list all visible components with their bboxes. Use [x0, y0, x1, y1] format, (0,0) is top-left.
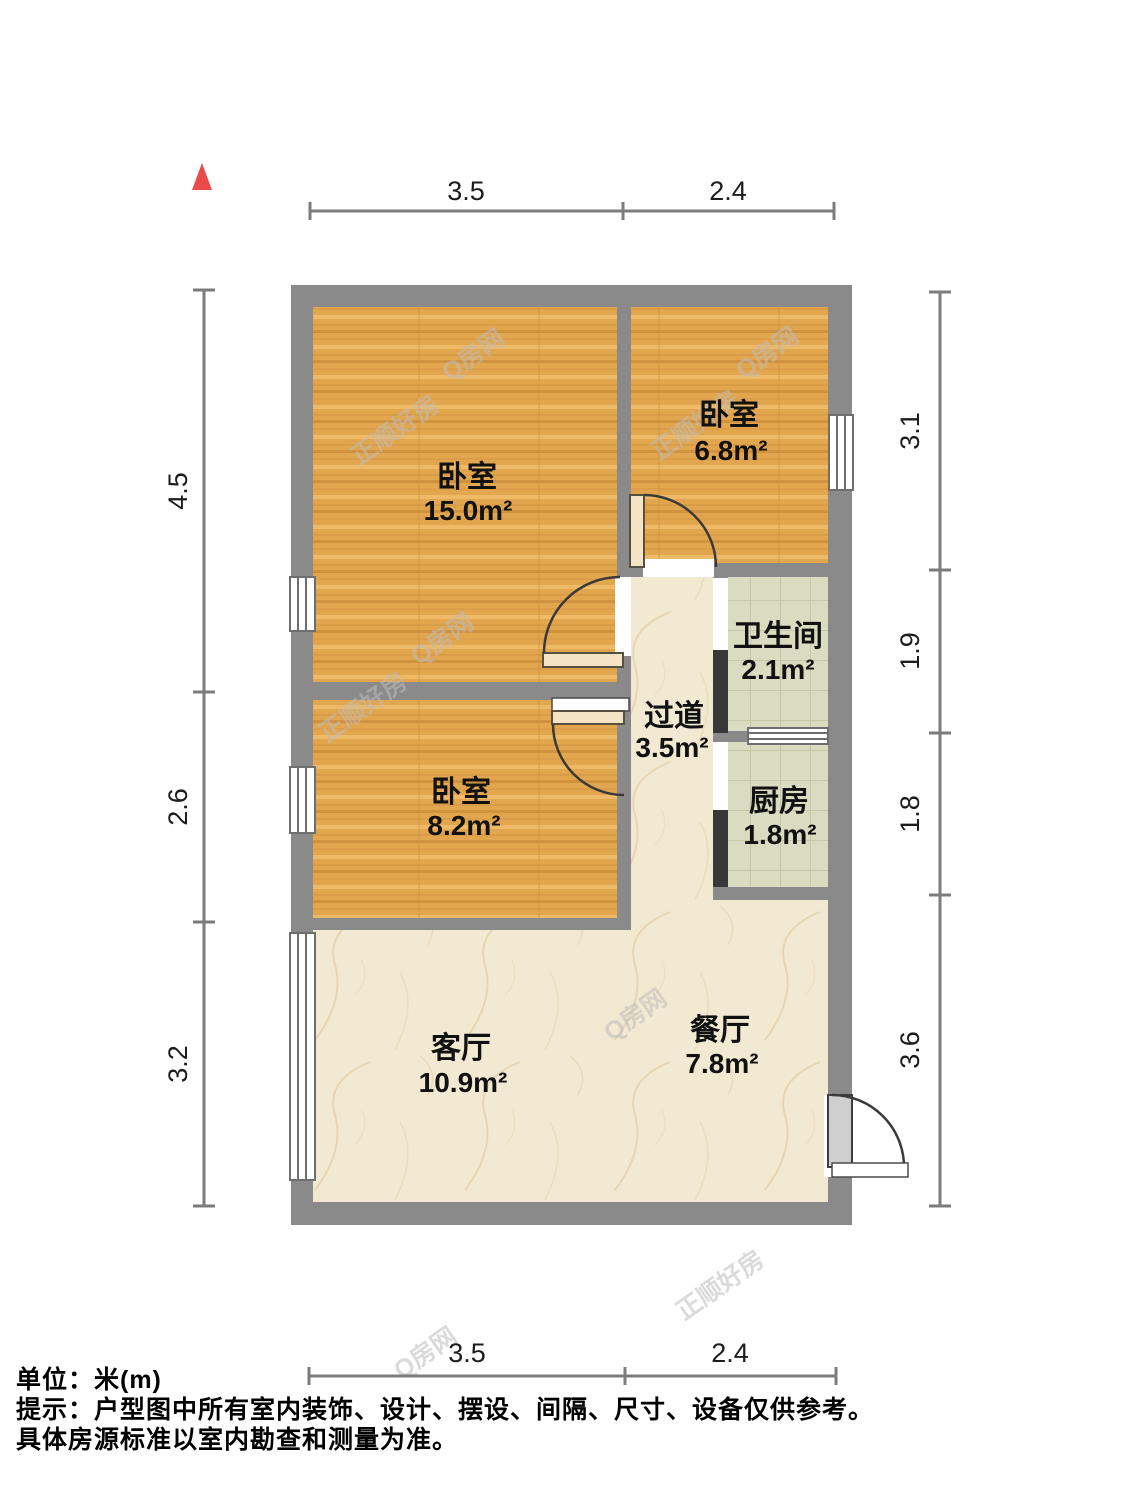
room-label-dining-room: 餐厅 7.8m² — [685, 1014, 758, 1079]
wall-top — [291, 285, 852, 307]
wall-bottom — [291, 1202, 852, 1225]
room-area: 3.5m² — [635, 732, 708, 763]
dim-bottom-right: 2.4 — [711, 1338, 749, 1368]
opening-bedroom-main-door — [615, 577, 631, 656]
watermark: 正顺好房 — [671, 1244, 770, 1325]
dim-right-4: 3.6 — [895, 1031, 925, 1069]
room-name: 客厅 — [431, 1031, 491, 1065]
window-living-room — [290, 933, 315, 1180]
room-area: 10.9m² — [419, 1067, 508, 1098]
opening-kitchen-door — [713, 742, 728, 810]
room-label-hallway: 过道 3.5m² — [635, 700, 708, 763]
floor-plan-canvas: 正顺好房 Q房网 正顺好房 Q房网 正顺好房 Q房网 Q房网 正顺好房 Q房网 … — [0, 0, 1144, 1503]
wall-kitchen-south — [713, 887, 828, 900]
dimension-right: 3.1 1.9 1.8 3.6 — [895, 292, 951, 1206]
room-area: 8.2m² — [427, 810, 500, 841]
door-entry — [828, 1095, 908, 1177]
room-name: 厨房 — [749, 785, 809, 818]
opening-bathroom-door — [713, 578, 728, 650]
dim-bottom-left: 3.5 — [448, 1338, 486, 1368]
floor-bedroom-middle — [313, 700, 617, 918]
window-bedroom-middle — [290, 767, 315, 833]
window-bath-kitchen-divider — [748, 728, 828, 744]
dimension-left: 4.5 2.6 3.2 — [163, 290, 215, 1206]
dim-right-3: 1.8 — [895, 795, 925, 833]
wall-dark-kitchen — [713, 810, 728, 887]
dim-left-3: 3.2 — [163, 1045, 193, 1083]
room-name: 卧室 — [699, 398, 759, 432]
dim-right-2: 1.9 — [895, 632, 925, 670]
dim-right-1: 3.1 — [895, 412, 925, 450]
room-area: 2.1m² — [741, 654, 814, 685]
dim-top-left: 3.5 — [447, 176, 485, 206]
wall-dark-bathroom — [713, 650, 728, 733]
dim-top-right: 2.4 — [709, 176, 747, 206]
room-area: 6.8m² — [694, 435, 767, 466]
room-name: 卧室 — [437, 460, 497, 494]
room-label-bathroom: 卫生间 2.1m² — [733, 620, 823, 685]
room-name: 过道 — [644, 700, 704, 733]
room-name: 餐厅 — [690, 1014, 750, 1047]
floor-plan-page: 正顺好房 Q房网 正顺好房 Q房网 正顺好房 Q房网 Q房网 正顺好房 Q房网 … — [0, 0, 1144, 1503]
room-label-kitchen: 厨房 1.8m² — [743, 785, 816, 850]
room-area: 7.8m² — [685, 1048, 758, 1079]
footer-disclaimer-2: 具体房源标准以室内勘查和测量为准。 — [16, 1420, 458, 1456]
room-name: 卧室 — [431, 775, 491, 809]
room-area: 15.0m² — [424, 495, 513, 526]
room-area: 1.8m² — [743, 819, 816, 850]
north-arrow-icon — [192, 163, 212, 190]
dim-left-1: 4.5 — [163, 472, 193, 510]
opening-bedroom-topright-door — [643, 559, 714, 577]
window-bedroom-main — [290, 577, 315, 631]
room-name: 卫生间 — [733, 620, 823, 653]
wall-bedroom-middle-south — [291, 918, 631, 930]
window-bedroom-top-right — [829, 415, 853, 490]
room-label-bedroom-middle: 卧室 8.2m² — [427, 775, 500, 841]
dimension-top: 3.5 2.4 — [310, 176, 834, 220]
dim-left-2: 2.6 — [163, 788, 193, 826]
